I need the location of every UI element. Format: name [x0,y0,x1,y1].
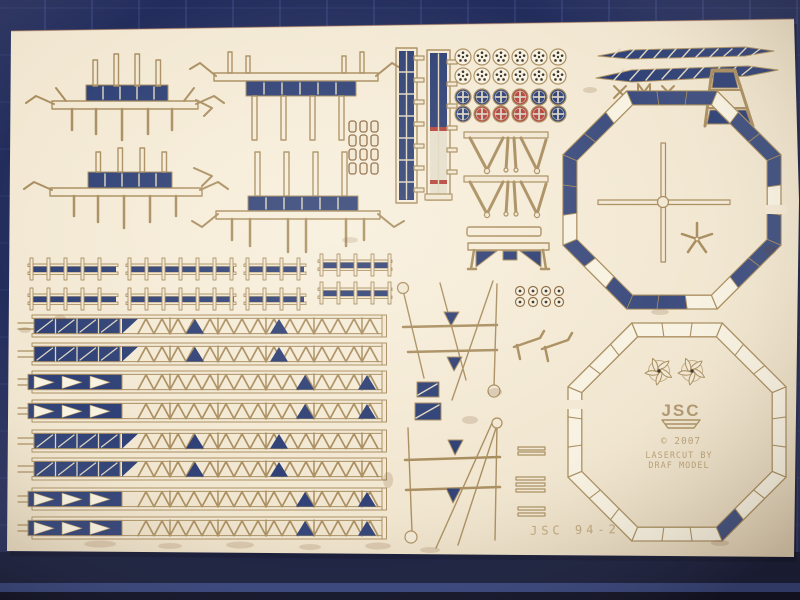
photo-lasercut-sheet-on-cutting-mat: JSC © 2007 LASERCUT BY DRAF MODEL [0,0,800,600]
scene-svg: JSC © 2007 LASERCUT BY DRAF MODEL [0,0,800,600]
photo-vignette [0,0,800,600]
